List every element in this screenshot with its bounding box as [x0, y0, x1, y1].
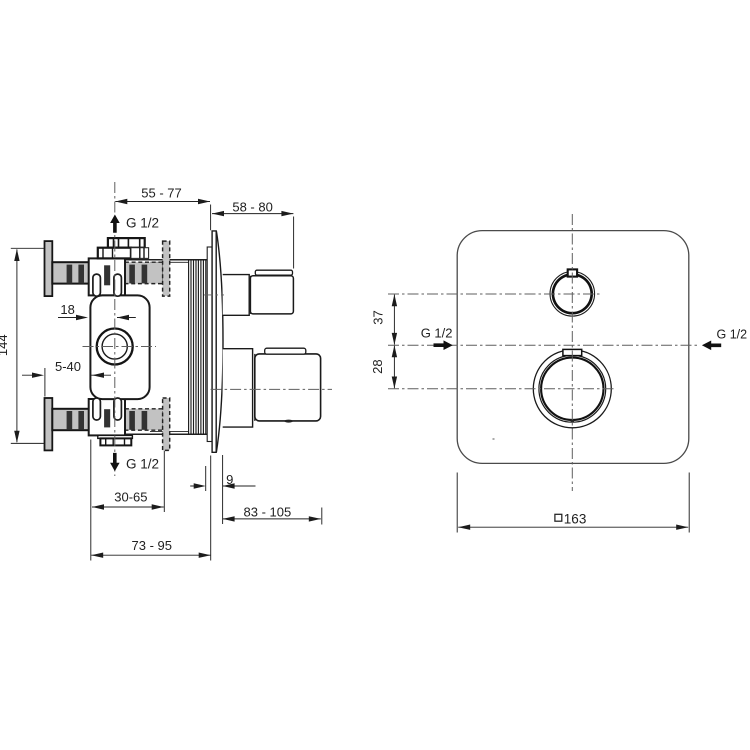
svg-text:G 1/2: G 1/2: [126, 216, 159, 231]
svg-text:18: 18: [60, 302, 74, 317]
svg-text:144: 144: [0, 334, 10, 356]
svg-text:28: 28: [370, 359, 385, 373]
svg-text:58 - 80: 58 - 80: [232, 199, 272, 214]
svg-text:73 - 95: 73 - 95: [132, 538, 172, 553]
svg-text:163: 163: [564, 511, 587, 526]
svg-text:30-65: 30-65: [114, 489, 147, 504]
svg-text:G 1/2: G 1/2: [126, 457, 159, 472]
svg-text:5-40: 5-40: [55, 359, 81, 374]
svg-text:55 - 77: 55 - 77: [141, 185, 181, 200]
svg-text:G 1/2: G 1/2: [421, 325, 453, 340]
svg-text:G 1/2: G 1/2: [717, 327, 748, 341]
svg-text:9: 9: [226, 472, 233, 487]
svg-text:37: 37: [371, 310, 386, 324]
svg-text:83 - 105: 83 - 105: [244, 505, 292, 520]
